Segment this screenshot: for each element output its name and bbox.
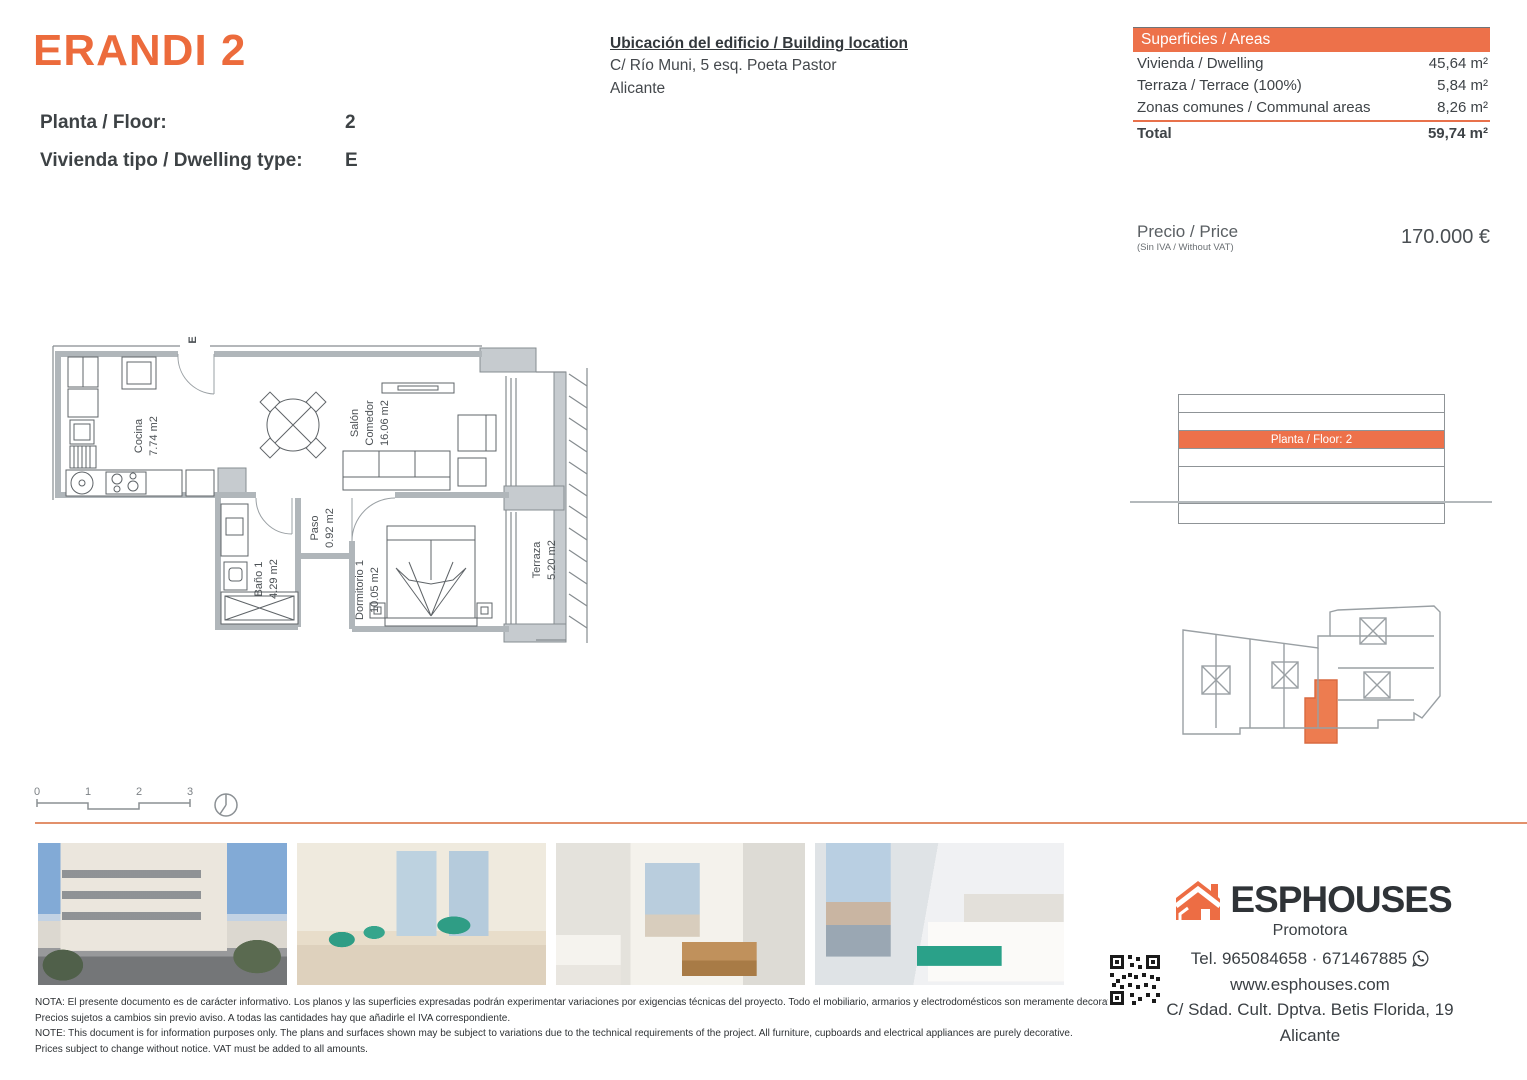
photo-living-room <box>297 843 546 985</box>
room-area-dormitorio: 10.05 m2 <box>369 567 381 613</box>
lightwell-cross <box>1364 672 1390 698</box>
table-row: Terraza / Terrace (100%) 5,84 m² <box>1133 74 1490 96</box>
note-line: Precios sujetos a cambios sin previo avi… <box>35 1011 1110 1027</box>
tv-sideboard <box>382 383 454 393</box>
nightstand <box>477 603 492 618</box>
room-area-salon: 16.06 m2 <box>379 400 391 446</box>
note-line: NOTE: This document is for information p… <box>35 1026 1110 1042</box>
room-label-cocina: Cocina <box>133 418 145 453</box>
room-label-paso: Paso <box>309 515 321 540</box>
highlighted-unit <box>1305 680 1337 743</box>
scale-1: 1 <box>85 786 91 798</box>
location-street: C/ Río Muni, 5 esq. Poeta Pastor <box>610 55 908 77</box>
floor-row: Planta / Floor: 2 <box>40 112 167 134</box>
total-label: Total <box>1137 125 1172 142</box>
side-table <box>458 458 486 486</box>
headboard <box>385 618 477 626</box>
location-heading: Ubicación del edificio / Building locati… <box>610 33 908 55</box>
scale-2: 2 <box>136 786 142 798</box>
dwelling-type-value: E <box>345 150 358 172</box>
dwelling-type-row: Vivienda tipo / Dwelling type: E <box>40 150 303 172</box>
room-area-paso: 0.92 m2 <box>324 508 336 548</box>
price-value: 170.000 € <box>1401 226 1490 249</box>
house-logo-icon <box>1168 876 1226 924</box>
room-label-salon2: Comedor <box>364 400 376 446</box>
toilet <box>224 562 247 590</box>
page-title: ERANDI 2 <box>33 26 246 76</box>
floor-bar <box>1178 448 1445 466</box>
photo-bedroom <box>815 843 1064 985</box>
areas-header: Superficies / Areas <box>1133 28 1490 52</box>
brand-name: ESPHOUSES <box>1230 879 1451 921</box>
site-partitions <box>1216 634 1318 728</box>
floor-bar <box>1178 466 1445 503</box>
room-label-salon: Salón <box>349 409 361 437</box>
room-area-cocina: 7.74 m2 <box>148 416 160 456</box>
table-row: Zonas comunes / Communal areas 8,26 m² <box>1133 96 1490 118</box>
bathroom-door <box>256 498 292 534</box>
area-value: 8,26 m² <box>1437 99 1488 116</box>
kitchen-counter <box>66 470 182 496</box>
dwelling-type-label: Vivienda tipo / Dwelling type: <box>40 150 303 171</box>
window-salon <box>506 376 516 486</box>
wall-block <box>504 486 564 510</box>
total-value: 59,74 m² <box>1428 125 1488 142</box>
area-value: 45,64 m² <box>1429 55 1488 72</box>
floor-label: Planta / Floor: <box>40 112 167 133</box>
separator-line <box>35 822 1527 824</box>
room-label-bano: Baño 1 <box>253 562 265 597</box>
location-city: Alicante <box>610 78 908 100</box>
armchair <box>458 415 496 451</box>
photo-kitchen <box>556 843 805 985</box>
window-bedroom <box>506 510 516 624</box>
building-section-diagram: Planta / Floor: 2 <box>1178 394 1445 524</box>
area-value: 5,84 m² <box>1437 77 1488 94</box>
note-line: Prices subject to change without notice.… <box>35 1042 1110 1058</box>
ground-line <box>1130 501 1492 503</box>
lightwell-cross <box>1272 662 1298 688</box>
note-line: NOTA: El presente documento es de caráct… <box>35 995 1110 1011</box>
brand-tagline: Promotora <box>1130 922 1490 940</box>
contact-block: Tel. 965084658 · 671467885 www.esphouses… <box>1160 946 1460 1048</box>
brochure-page: ERANDI 2 Planta / Floor: 2 Vivienda tipo… <box>0 0 1527 1080</box>
room-label-terraza: Terraza <box>531 541 543 579</box>
scale-bar: 0 1 2 3 <box>30 783 260 823</box>
office-city: Alicante <box>1160 1023 1460 1049</box>
scale-0: 0 <box>34 786 40 798</box>
office-address: C/ Sdad. Cult. Dptva. Betis Florida, 19 <box>1160 997 1460 1023</box>
building-location: Ubicación del edificio / Building locati… <box>610 33 908 100</box>
entry-door <box>178 354 214 394</box>
kitchen-cabinet <box>68 389 98 417</box>
wall-block <box>480 348 536 372</box>
area-label: Zonas comunes / Communal areas <box>1137 99 1370 116</box>
highlighted-floor-bar: Planta / Floor: 2 <box>1178 430 1445 448</box>
scale-segments <box>37 799 190 809</box>
vanity <box>221 504 248 556</box>
sofa-back <box>343 477 450 490</box>
whatsapp-icon <box>1412 950 1429 967</box>
area-label: Vivienda / Dwelling <box>1137 55 1263 72</box>
total-row: Total 59,74 m² <box>1133 122 1490 142</box>
disclaimer-notes: NOTA: El presente documento es de caráct… <box>35 995 1110 1057</box>
wall-pier <box>218 468 246 496</box>
phone-numbers: Tel. 965084658 · 671467885 <box>1191 946 1407 972</box>
qr-code <box>1108 953 1162 1007</box>
areas-table: Superficies / Areas Vivienda / Dwelling … <box>1133 27 1490 142</box>
entry-label: E <box>187 336 199 343</box>
floor-value: 2 <box>345 112 356 134</box>
brand-block: ESPHOUSES Promotora <box>1130 876 1490 940</box>
floor-bar <box>1178 412 1445 430</box>
room-area-terraza: 5.20 m2 <box>546 540 558 580</box>
terrace-hatch <box>569 374 587 628</box>
dishwasher <box>186 470 214 496</box>
room-area-bano: 4.29 m2 <box>268 559 280 599</box>
photo-building-exterior <box>38 843 287 985</box>
area-label: Terraza / Terrace (100%) <box>1137 77 1302 94</box>
floor-bar <box>1178 503 1445 523</box>
scale-3: 3 <box>187 786 193 798</box>
floor-plan: E Cocina 7.74 m2 Salón Comedor 16.06 m2 … <box>30 328 590 663</box>
sofa-seats <box>343 451 450 477</box>
floor-bar <box>1178 394 1445 412</box>
wall-block <box>504 624 566 642</box>
table-row: Vivienda / Dwelling 45,64 m² <box>1133 52 1490 74</box>
website: www.esphouses.com <box>1160 972 1460 998</box>
north-needle <box>220 794 226 814</box>
lightwell-cross <box>1360 618 1386 644</box>
room-label-dormitorio: Dormitorio 1 <box>354 560 366 620</box>
site-key-plan <box>1178 588 1448 758</box>
price-block: Precio / Price (Sin IVA / Without VAT) 1… <box>1137 222 1490 253</box>
